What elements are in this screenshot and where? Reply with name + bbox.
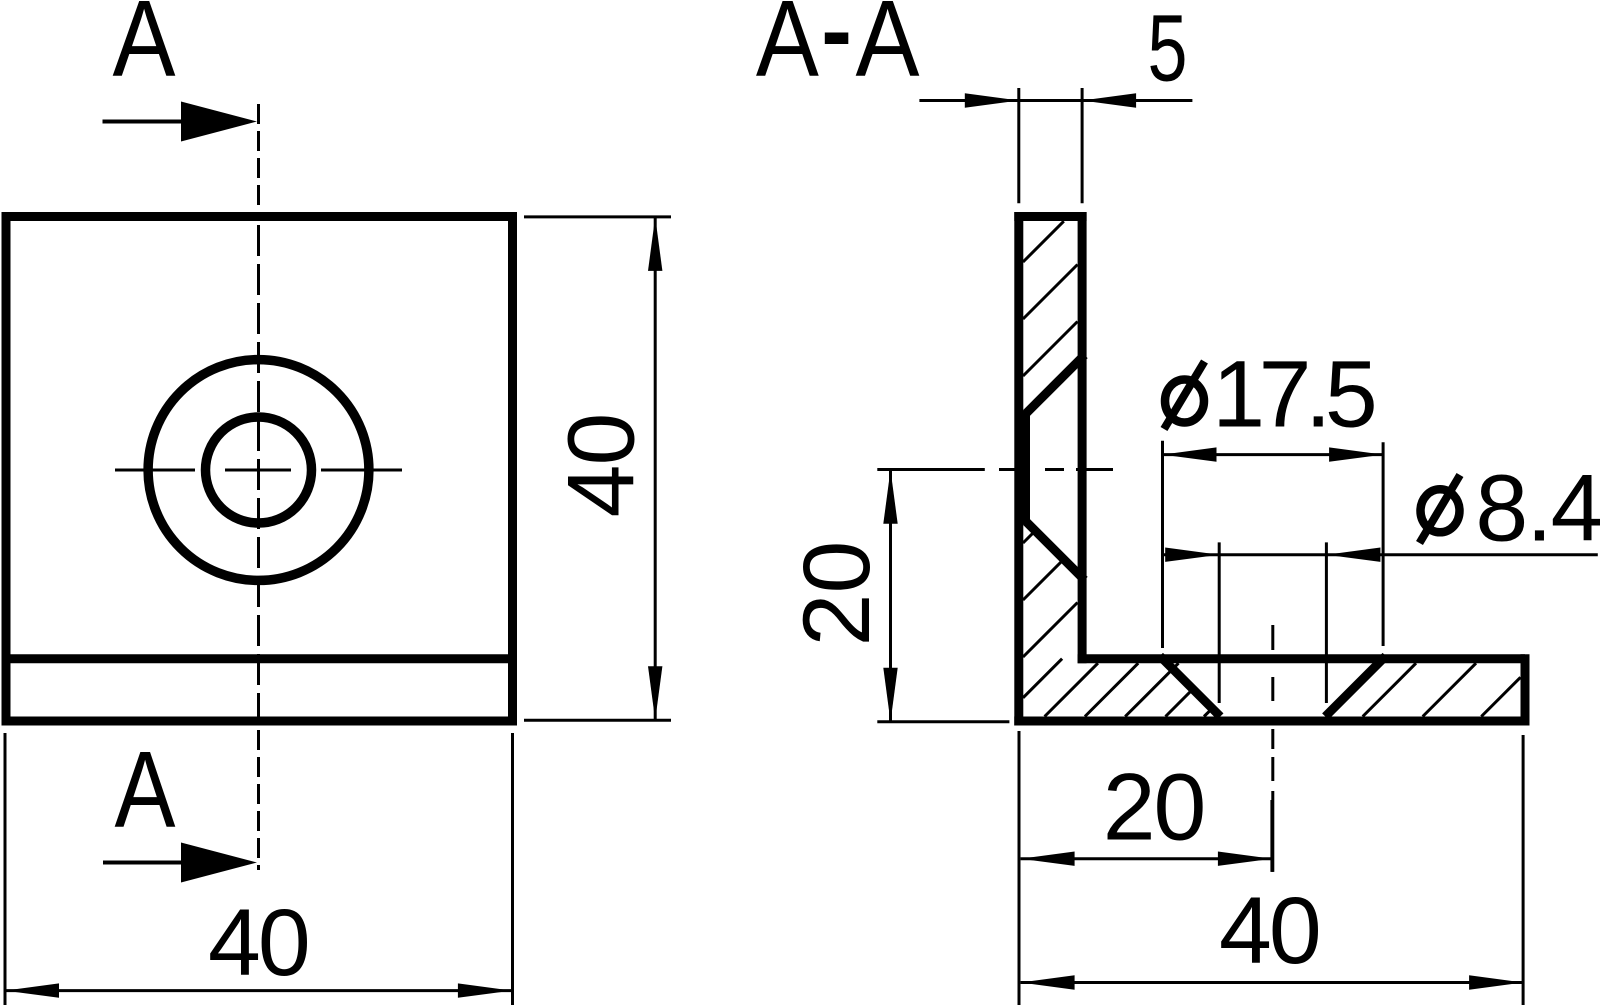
svg-text:A: A [113, 0, 176, 100]
svg-text:8.4: 8.4 [1475, 456, 1600, 562]
svg-text:40: 40 [1219, 878, 1319, 984]
svg-text:40: 40 [208, 890, 308, 996]
svg-text:17.5: 17.5 [1212, 342, 1374, 448]
svg-text:A: A [856, 0, 920, 100]
svg-text:A: A [756, 0, 819, 100]
svg-text:20: 20 [784, 541, 890, 647]
svg-text:5: 5 [1148, 0, 1188, 102]
svg-text:20: 20 [1103, 755, 1205, 861]
svg-text:A: A [115, 729, 176, 851]
svg-text:40: 40 [548, 414, 654, 518]
